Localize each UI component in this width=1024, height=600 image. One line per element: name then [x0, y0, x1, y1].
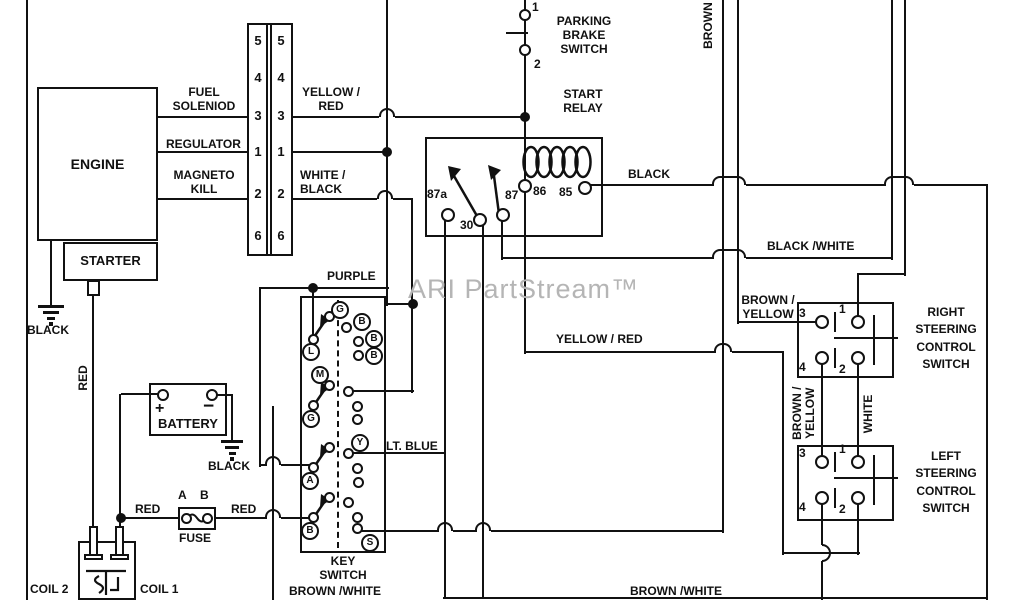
left-steering-terminal-4 [815, 491, 829, 505]
wire-battery-ground-leg [231, 395, 233, 441]
wire-red-fuse-1 [121, 517, 179, 519]
black-wire-label: BLACK [628, 168, 670, 182]
ground-icon [229, 452, 236, 455]
right-steering-label: RIGHT STEERING CONTROL SWITCH [898, 304, 994, 374]
wire-hop [475, 522, 491, 531]
relay-87-label: 87 [505, 189, 518, 203]
relay-terminal-85 [578, 181, 592, 195]
white-black-line: WHITE / [300, 169, 345, 183]
white-black-line: BLACK [300, 183, 345, 197]
brown-wire-label: BROWN [702, 3, 716, 49]
key-contact [343, 386, 354, 397]
right-steering-t3-label: 3 [799, 307, 806, 321]
right-steering-terminal-3 [815, 315, 829, 329]
wire-yellow-red-b1 [524, 351, 716, 353]
key-terminal-m: M [311, 366, 329, 384]
fuse-terminal-a [181, 513, 192, 524]
brown-yellow-label: BROWN / YELLOW [739, 294, 797, 322]
parking-brake-line: BRAKE [544, 29, 624, 43]
right-steering-line: CONTROL [898, 339, 994, 356]
coil-post-flange [110, 554, 129, 560]
key-contact [324, 442, 335, 453]
relay-coil-icon [522, 140, 592, 184]
wire-black-white-1 [502, 257, 714, 259]
engine-ground-label: BLACK [27, 324, 69, 338]
key-switch-line: SWITCH [309, 569, 377, 583]
wire-left-switch-t2-h [782, 552, 860, 554]
wire-keyswitch-g-down [272, 406, 274, 600]
junction-dot [308, 283, 318, 293]
wire-hop [822, 544, 831, 562]
connector-pin: 6 [251, 229, 265, 244]
ground-icon [47, 317, 55, 320]
wire-right-switch-t1-feed [857, 273, 906, 275]
wire-brown-vertical [722, 0, 724, 533]
right-steering-t4-label: 4 [799, 361, 806, 375]
fuel-label-line: SOLENIOD [170, 100, 238, 114]
left-steering-line: SWITCH [898, 500, 994, 517]
right-steering-t2-label: 2 [839, 363, 846, 377]
wire-hop [712, 176, 746, 185]
connector-pin: 5 [273, 34, 289, 49]
relay-terminal-86 [518, 179, 532, 193]
wire-left-switch-t4-down-b [821, 561, 823, 600]
key-terminal-s: S [361, 534, 379, 552]
key-terminal-b: B [301, 522, 319, 540]
key-contact [343, 448, 354, 459]
key-contact [353, 336, 364, 347]
watermark: ARI PartStream™ [408, 274, 639, 305]
battery-ground-label: BLACK [208, 460, 250, 474]
junction-dot [116, 513, 126, 523]
wire-black-white-up [891, 0, 893, 260]
left-steering-line: CONTROL [898, 483, 994, 500]
connector-pin: 1 [273, 145, 289, 160]
key-contact [352, 463, 363, 474]
junction-dot [520, 112, 530, 122]
magneto-kill-label: MAGNETO KILL [172, 169, 236, 197]
key-terminal-b: B [353, 313, 371, 331]
key-terminal-l: L [302, 343, 320, 361]
left-steering-line: LEFT [898, 448, 994, 465]
key-terminal-g: G [331, 301, 349, 319]
wire-black-1 [590, 184, 714, 186]
yellow-red-line: RED [298, 100, 364, 114]
switch-contact-bar [834, 312, 836, 332]
left-steering-terminal-1 [851, 455, 865, 469]
connector-pin: 1 [251, 145, 265, 160]
wire-hop [884, 176, 914, 185]
connector-pin: 3 [273, 109, 289, 124]
switch-contact-bar [834, 452, 836, 472]
wire-black-2 [746, 184, 886, 186]
red-vertical-label: RED [77, 355, 91, 401]
wire-hop [712, 249, 746, 258]
regulator-label: REGULATOR [166, 138, 241, 152]
ground-icon [43, 311, 59, 314]
brown-yellow-v-line: YELLOW [804, 383, 817, 443]
wire-black-3 [914, 184, 988, 186]
right-steering-terminal-1 [851, 315, 865, 329]
key-contact [343, 497, 354, 508]
key-switch-centerline [337, 300, 339, 548]
key-terminal-b: B [365, 330, 383, 348]
left-steering-terminal-2 [851, 491, 865, 505]
fuse-a-label: A [178, 489, 187, 503]
parking-brake-terminal-1 [519, 9, 531, 21]
wire-white-black-b [393, 198, 413, 200]
connector-pin: 4 [251, 71, 265, 86]
brown-yellow-line: BROWN / [739, 294, 797, 308]
key-switch-label: KEY SWITCH [309, 555, 377, 583]
switch-contact-bar [834, 337, 898, 339]
white-vertical-label: WHITE [862, 392, 876, 436]
wire-brown-yellow-vertical [737, 0, 739, 324]
engine-label: ENGINE [37, 156, 158, 172]
switch-contact-bar [834, 488, 836, 508]
left-steering-label: LEFT STEERING CONTROL SWITCH [898, 448, 994, 518]
switch-contact-bar [834, 348, 836, 368]
fuse-label: FUSE [179, 532, 211, 546]
key-contact [352, 414, 363, 425]
wire-purple-branch [259, 288, 261, 467]
connector-divider [266, 23, 268, 256]
connector-pin: 5 [251, 34, 265, 49]
parking-brake-line: PARKING [544, 15, 624, 29]
start-relay-line: RELAY [556, 102, 610, 116]
fuse-terminal-b [202, 513, 213, 524]
wire-yellow-red-right-down [782, 352, 784, 555]
wire-hop [265, 456, 281, 465]
left-steering-t3-label: 3 [799, 447, 806, 461]
battery-label: BATTERY [151, 417, 225, 432]
connector-pin: 4 [273, 71, 289, 86]
wire-yellow-red-a1 [291, 116, 379, 118]
left-steering-line: STEERING [898, 465, 994, 482]
wire-yellow-red-b2 [732, 351, 784, 353]
relay-30-label: 30 [460, 219, 473, 233]
fuse-b-label: B [200, 489, 209, 503]
wire-hop [265, 509, 281, 518]
coil2-label: COIL 2 [30, 583, 68, 597]
wire-hop [379, 108, 395, 117]
yellow-red-line: YELLOW / [298, 86, 364, 100]
wire-hop [437, 522, 453, 531]
wire-key-s-2 [453, 530, 477, 532]
yellow-red-label: YELLOW / RED [298, 86, 364, 114]
fuel-solenoid-label: FUEL SOLENIOD [170, 86, 238, 114]
red-wire-label: RED [135, 503, 160, 517]
left-steering-t1-label: 1 [839, 443, 846, 457]
starter-label: STARTER [63, 254, 158, 269]
switch-contact-bar [873, 455, 875, 505]
right-steering-t1-label: 1 [839, 303, 846, 317]
coil-post-flange [84, 554, 103, 560]
key-terminal-y: Y [351, 434, 369, 452]
ground-icon [38, 305, 64, 308]
wiring-diagram: G B B B L M G Y A B S ARI PartStream™ EN… [0, 0, 1024, 600]
magneto-label-line: KILL [172, 183, 236, 197]
parking-brake-line: SWITCH [544, 43, 624, 57]
key-contact [352, 401, 363, 412]
fuel-label-line: FUEL [170, 86, 238, 100]
switch-contact-bar [834, 477, 898, 479]
parking-brake-label: PARKING BRAKE SWITCH [544, 15, 624, 56]
brown-yellow-line: YELLOW [739, 308, 797, 322]
start-relay-line: START [556, 88, 610, 102]
wire-left-edge [26, 0, 28, 600]
key-contact [324, 492, 335, 503]
brown-white-label: BROWN /WHITE [289, 585, 381, 599]
start-relay-label: START RELAY [556, 88, 610, 116]
wire-yellow-red-a2 [395, 116, 525, 118]
wire-starter-red [92, 295, 94, 530]
wire-battery-positive [119, 394, 121, 532]
key-contact [353, 477, 364, 488]
wire-engine-ground-leg [50, 240, 52, 306]
red-wire-label: RED [231, 503, 256, 517]
wire-key-s-3 [491, 530, 724, 532]
key-terminal-b: B [365, 347, 383, 365]
wire-right-switch-t1-up [904, 0, 906, 276]
key-switch-line: KEY [309, 555, 377, 569]
wire-red-fuse-2 [215, 517, 267, 519]
purple-label: PURPLE [327, 270, 376, 284]
connector-pin: 2 [251, 187, 265, 202]
wire-hop [377, 190, 393, 199]
relay-86-label: 86 [533, 185, 546, 199]
lt-blue-label: LT. BLUE [386, 440, 438, 454]
starter-stub [87, 280, 100, 296]
relay-terminal-87a [441, 208, 455, 222]
left-steering-t2-label: 2 [839, 503, 846, 517]
wire-parking-brake-tick [506, 32, 528, 34]
battery-minus-label: − [203, 396, 214, 418]
white-black-label: WHITE / BLACK [300, 169, 345, 197]
left-steering-terminal-3 [815, 455, 829, 469]
key-contact [352, 523, 363, 534]
key-contact [352, 512, 363, 523]
wire-hop [714, 343, 732, 352]
connector-pin: 6 [273, 229, 289, 244]
black-white-wire-label: BLACK /WHITE [767, 240, 854, 254]
wire-fuel-solenoid [158, 116, 248, 118]
brown-white-label: BROWN /WHITE [630, 585, 722, 599]
junction-dot [382, 147, 392, 157]
wire-black-white-2 [746, 257, 893, 259]
wire-purple [259, 287, 389, 289]
parking-brake-terminal-2 [519, 44, 531, 56]
right-steering-line: SWITCH [898, 356, 994, 373]
parking-brake-pin1: 1 [532, 1, 539, 15]
wire-pin1 [291, 151, 387, 153]
relay-85-label: 85 [559, 186, 572, 200]
switch-contact-bar [873, 315, 875, 365]
right-steering-line: STEERING [898, 321, 994, 338]
relay-87a-label: 87a [427, 188, 447, 202]
yellow-red-wire-label: YELLOW / RED [556, 333, 643, 347]
left-steering-t4-label: 4 [799, 501, 806, 515]
connector-pin: 3 [251, 109, 265, 124]
coil1-label: COIL 1 [140, 583, 178, 597]
relay-terminal-87 [496, 208, 510, 222]
right-steering-line: RIGHT [898, 304, 994, 321]
wire-black-right-down [986, 185, 988, 600]
parking-brake-pin2: 2 [534, 58, 541, 72]
key-terminal-a: A [301, 472, 319, 490]
wire-magneto-kill [158, 198, 248, 200]
key-contact [341, 322, 352, 333]
wire-white-black-a [291, 198, 377, 200]
magneto-label-line: MAGNETO [172, 169, 236, 183]
ground-icon [225, 446, 239, 449]
coil-internals-icon [84, 565, 130, 598]
right-steering-terminal-2 [851, 351, 865, 365]
connector-pin: 2 [273, 187, 289, 202]
brown-yellow-vertical-label: BROWN / YELLOW [791, 383, 817, 443]
relay-terminal-30 [473, 213, 487, 227]
connector-divider [270, 23, 272, 256]
key-terminal-g: G [302, 410, 320, 428]
ground-icon [221, 440, 243, 443]
right-steering-terminal-4 [815, 351, 829, 365]
key-contact [353, 350, 364, 361]
